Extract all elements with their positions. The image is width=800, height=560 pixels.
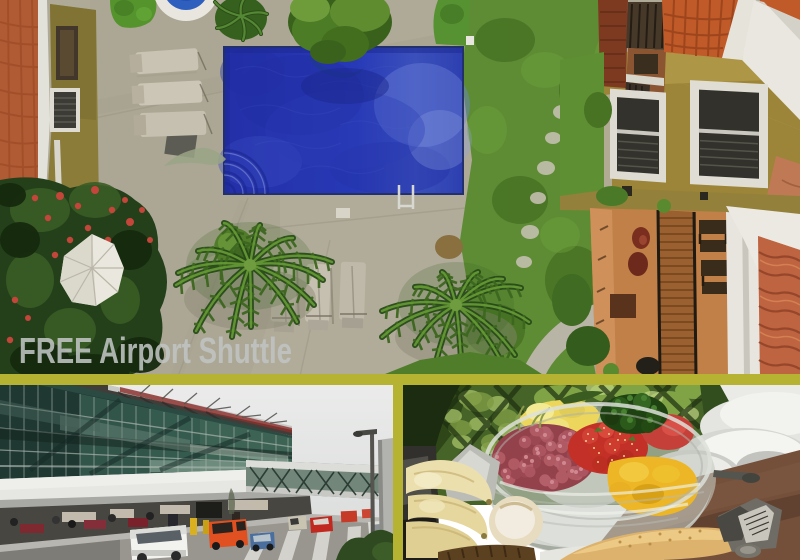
svg-text:FREE Airport Shuttle: FREE Airport Shuttle <box>19 330 292 371</box>
